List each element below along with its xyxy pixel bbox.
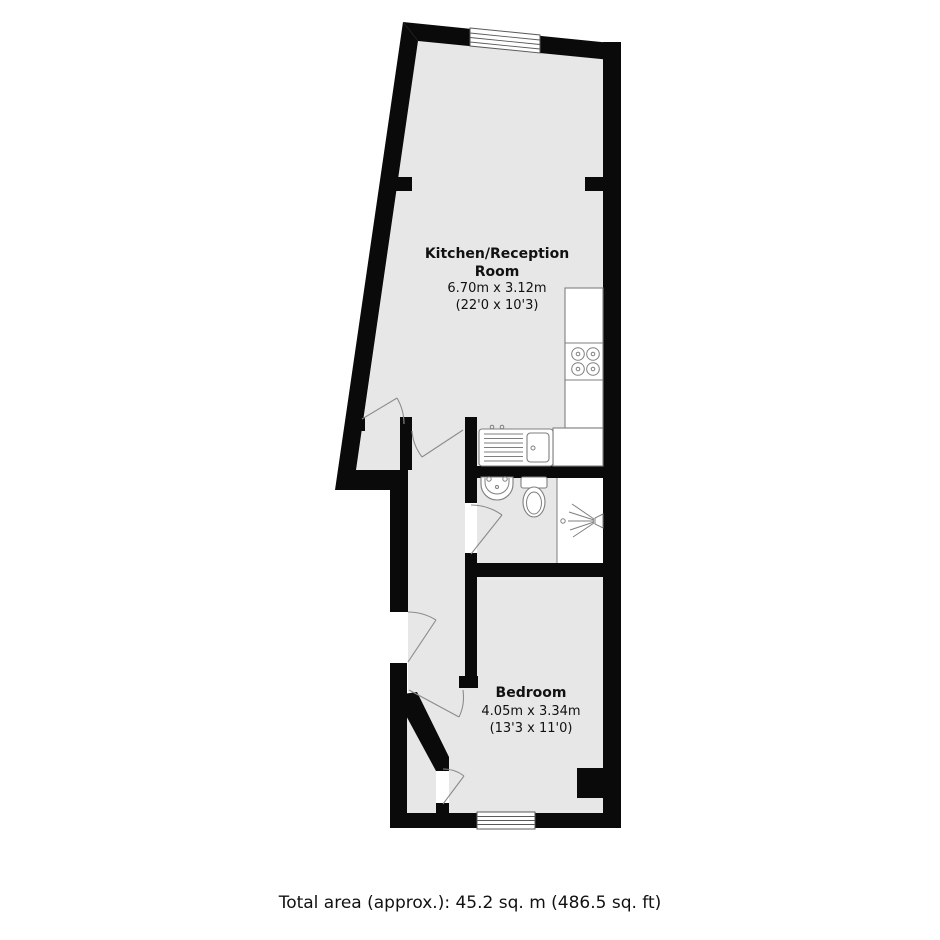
wall-bathroom-top xyxy=(465,466,603,478)
wall-left-lower-bottom xyxy=(390,663,407,828)
wall-kitchen-door-stub xyxy=(352,417,365,431)
chimney-breast xyxy=(577,768,605,798)
wall-hall-bath-upper xyxy=(465,417,477,503)
kitchen-label-line1: Kitchen/Reception xyxy=(425,246,569,262)
kitchen-size-imperial: (22'0 x 10'3) xyxy=(456,298,539,313)
wall-vestibule-right xyxy=(400,417,412,470)
bedroom-size-imperial: (13'3 x 11'0) xyxy=(490,721,573,736)
bedroom-label: Bedroom 4.05m x 3.34m (13'3 x 11'0) xyxy=(481,685,580,736)
wall-right xyxy=(603,42,621,828)
corner-counter xyxy=(553,428,603,466)
wall-bottom-right xyxy=(535,813,621,828)
toilet-icon xyxy=(521,477,547,517)
wall-bedroom-top xyxy=(465,563,621,577)
hallway-floor xyxy=(408,417,465,692)
wall-left-lower-upper xyxy=(390,488,408,612)
window-bottom-icon xyxy=(477,812,535,829)
floorplan-drawing: Kitchen/Reception Room 6.70m x 3.12m (22… xyxy=(0,0,940,940)
wall-bottom-left xyxy=(390,813,477,828)
kitchen-sink-icon xyxy=(479,425,553,466)
wall-closet-stub-bottom xyxy=(436,803,449,813)
bedroom-size-metric: 4.05m x 3.34m xyxy=(481,704,580,719)
total-area-label: Total area (approx.): 45.2 sq. m (486.5 … xyxy=(278,893,662,913)
bedroom-label-line1: Bedroom xyxy=(496,685,567,701)
kitchen-size-metric: 6.70m x 3.12m xyxy=(447,281,546,296)
wall-stub-right xyxy=(585,177,605,191)
floorplan-page: Kitchen/Reception Room 6.70m x 3.12m (22… xyxy=(0,0,940,940)
wall-hall-bath-foot xyxy=(459,676,478,688)
wall-stub-left xyxy=(392,177,412,191)
kitchen-label-line2: Room xyxy=(475,264,520,280)
